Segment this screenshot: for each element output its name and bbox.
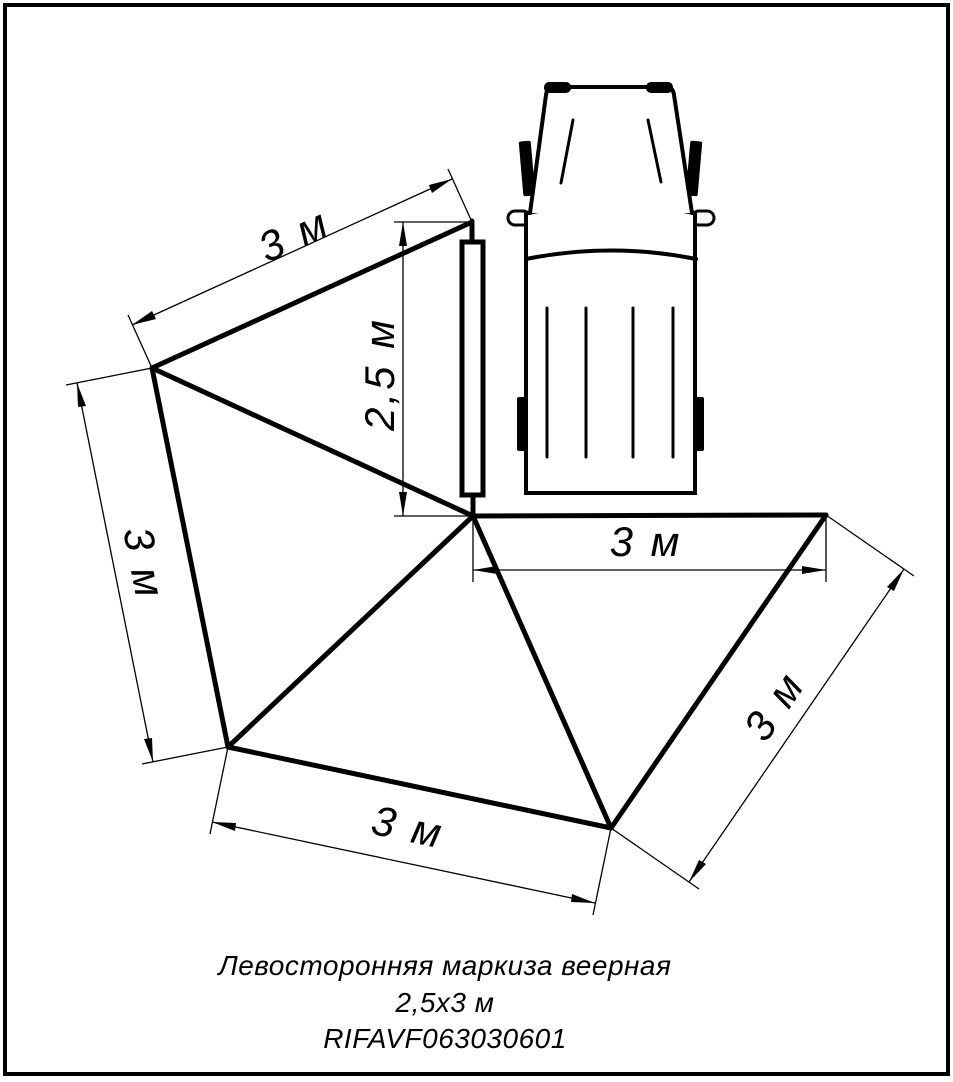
cab-outline [530, 87, 692, 213]
cab-corner-pad-left [544, 82, 571, 93]
dim-label-inner-horizontal: 3 м [610, 518, 683, 565]
rear-wheel-right [694, 397, 704, 451]
vehicle-top-view [508, 82, 714, 493]
cab-corner-pad-right [646, 82, 673, 93]
awning-rib-4 [473, 515, 826, 516]
drawing-sheet: 3 м 2,5 м 3 м 3 м 3 м [0, 0, 953, 1082]
product-title-line-1: Левосторонняя маркиза веерная [217, 950, 672, 981]
rear-wheel-left [517, 397, 527, 451]
product-title-line-3: RIFAVF063030601 [323, 1023, 567, 1054]
awning-case [462, 242, 483, 495]
dim-label-height: 2,5 м [356, 317, 403, 432]
product-title-line-2: 2,5х3 м [395, 987, 495, 1018]
technical-drawing: 3 м 2,5 м 3 м 3 м 3 м [0, 0, 953, 1082]
